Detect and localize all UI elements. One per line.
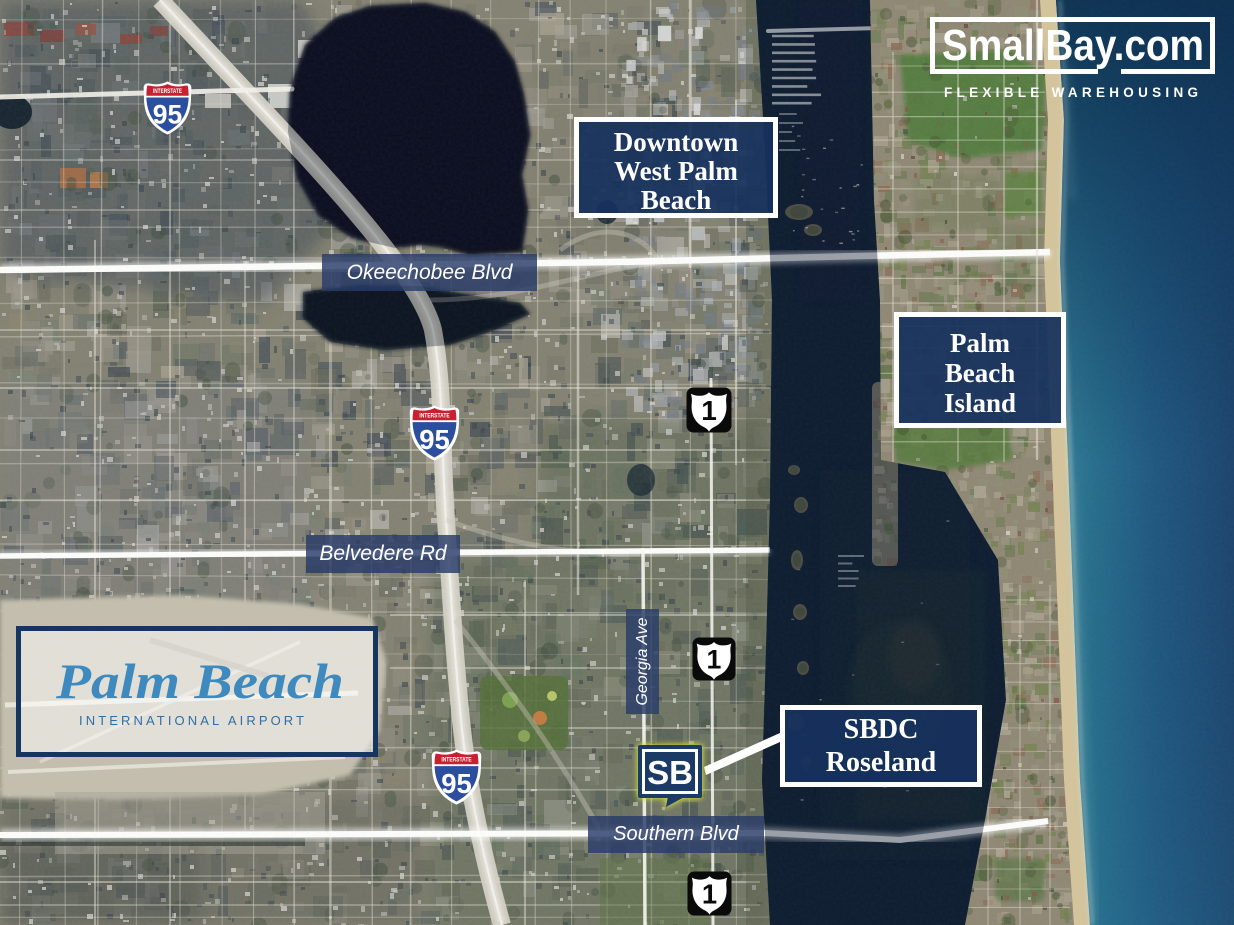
svg-text:INTERSTATE: INTERSTATE [441,757,472,764]
svg-text:SmallBay.com: SmallBay.com [942,21,1204,70]
svg-text:FLEXIBLE WAREHOUSING: FLEXIBLE WAREHOUSING [944,85,1204,100]
svg-text:95: 95 [419,424,450,455]
svg-text:95: 95 [441,768,472,799]
svg-text:Palm Beach: Palm Beach [55,653,344,709]
svg-text:INTERSTATE: INTERSTATE [419,413,450,420]
svg-text:SB: SB [647,754,693,791]
svg-text:1: 1 [702,878,717,909]
svg-text:1: 1 [707,645,722,675]
svg-text:95: 95 [153,100,182,130]
svg-text:1: 1 [701,395,717,426]
svg-text:INTERSTATE: INTERSTATE [153,88,182,95]
svg-text:INTERNATIONAL AIRPORT: INTERNATIONAL AIRPORT [79,713,309,728]
